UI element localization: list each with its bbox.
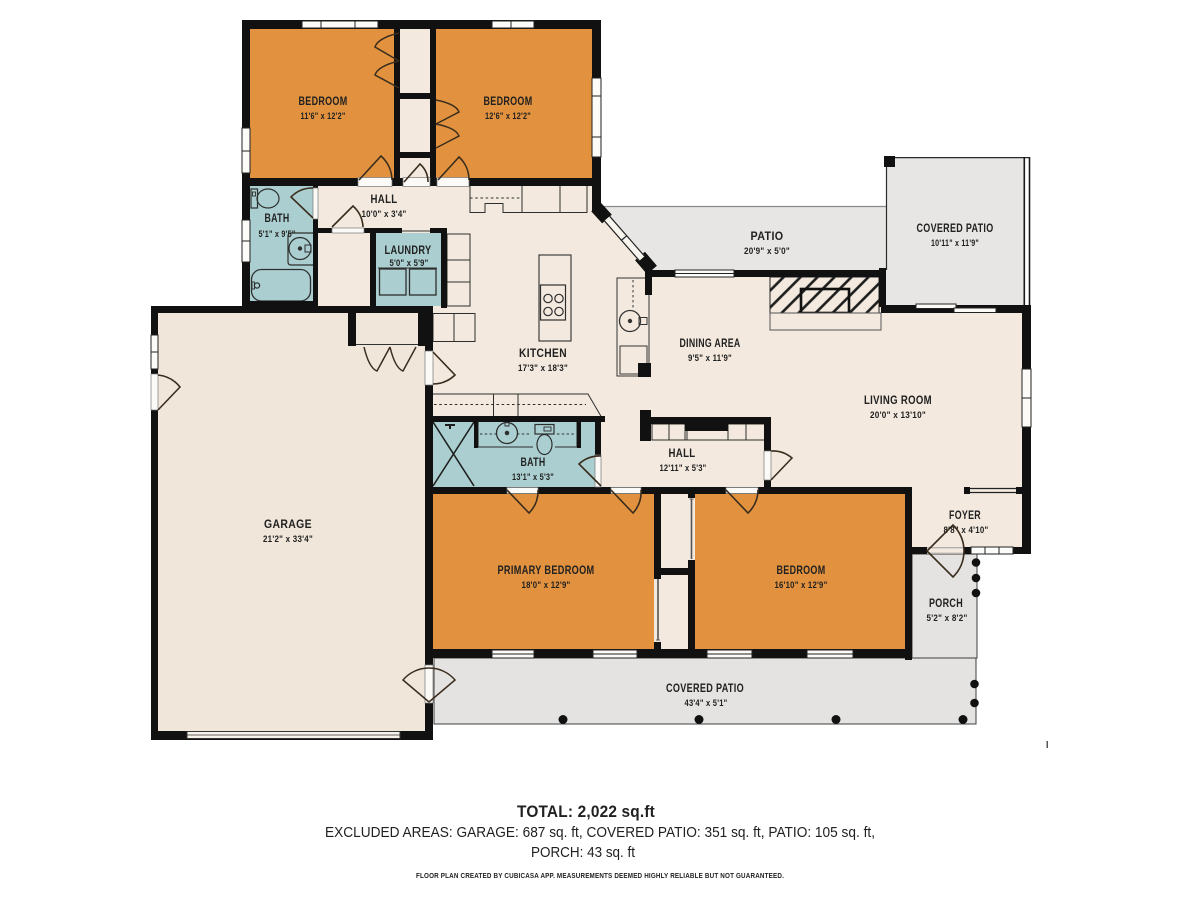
svg-text:18'0" x 12'9": 18'0" x 12'9" [522,580,571,591]
svg-text:BATH: BATH [265,213,290,225]
svg-text:LIVING ROOM: LIVING ROOM [864,395,932,407]
svg-text:COVERED PATIO: COVERED PATIO [917,223,994,235]
svg-text:5'0" x 5'9": 5'0" x 5'9" [390,258,429,269]
svg-text:13'1" x 5'3": 13'1" x 5'3" [512,472,554,483]
svg-text:21'2" x 33'4": 21'2" x 33'4" [263,534,313,545]
svg-text:COVERED PATIO: COVERED PATIO [666,683,744,695]
svg-text:FOYER: FOYER [949,510,981,522]
svg-text:HALL: HALL [371,194,398,206]
svg-text:16'10" x 12'9": 16'10" x 12'9" [775,580,828,591]
svg-text:GARAGE: GARAGE [264,519,312,531]
svg-text:BEDROOM: BEDROOM [777,565,826,577]
svg-text:LAUNDRY: LAUNDRY [385,245,432,257]
svg-text:9'5" x 11'9": 9'5" x 11'9" [688,353,732,364]
svg-text:20'0" x 13'10": 20'0" x 13'10" [870,410,926,421]
svg-text:17'3" x 18'3": 17'3" x 18'3" [518,363,568,374]
svg-text:BEDROOM: BEDROOM [484,96,533,108]
svg-text:HALL: HALL [669,448,696,460]
svg-text:KITCHEN: KITCHEN [519,348,567,360]
svg-text:11'6" x 12'2": 11'6" x 12'2" [301,111,346,122]
svg-text:BATH: BATH [521,457,546,469]
svg-text:12'6" x 12'2": 12'6" x 12'2" [485,111,531,122]
svg-text:5'2" x 8'2": 5'2" x 8'2" [927,613,968,624]
svg-text:10'0" x 3'4": 10'0" x 3'4" [362,209,407,220]
svg-text:DINING AREA: DINING AREA [680,338,741,350]
svg-text:5'1" x 9'5": 5'1" x 9'5" [259,229,296,240]
svg-text:BEDROOM: BEDROOM [299,96,348,108]
svg-text:EXCLUDED AREAS: GARAGE: 687 sq: EXCLUDED AREAS: GARAGE: 687 sq. ft, COVE… [325,825,875,841]
svg-text:TOTAL: 2,022 sq.ft: TOTAL: 2,022 sq.ft [517,803,655,821]
svg-text:8'8" x 4'10": 8'8" x 4'10" [944,525,989,536]
svg-text:12'11" x 5'3": 12'11" x 5'3" [660,463,707,474]
svg-text:PORCH: 43 sq. ft: PORCH: 43 sq. ft [531,845,635,861]
svg-text:20'9" x 5'0": 20'9" x 5'0" [744,246,790,257]
svg-text:PRIMARY BEDROOM: PRIMARY BEDROOM [498,565,595,577]
svg-text:PORCH: PORCH [929,598,963,610]
svg-text:43'4" x 5'1": 43'4" x 5'1" [685,698,728,709]
svg-text:PATIO: PATIO [751,231,784,243]
svg-text:FLOOR PLAN CREATED BY CUBICASA: FLOOR PLAN CREATED BY CUBICASA APP. MEAS… [416,871,784,880]
svg-text:10'11" x 11'9": 10'11" x 11'9" [931,238,979,249]
